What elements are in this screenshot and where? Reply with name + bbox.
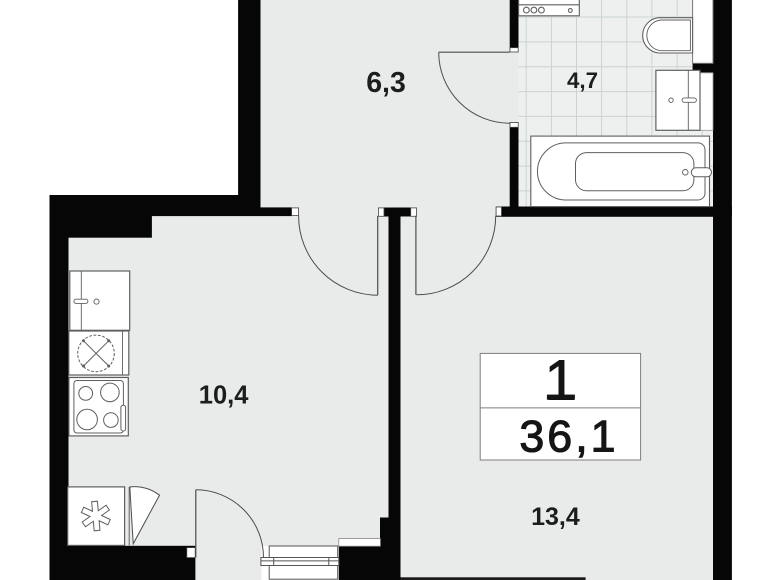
- svg-text:4,7: 4,7: [567, 68, 598, 93]
- svg-text:10,4: 10,4: [199, 382, 249, 410]
- svg-text:36,1: 36,1: [519, 411, 618, 461]
- svg-text:13,4: 13,4: [531, 503, 580, 531]
- svg-text:1: 1: [545, 349, 577, 413]
- svg-text:6,3: 6,3: [366, 67, 406, 99]
